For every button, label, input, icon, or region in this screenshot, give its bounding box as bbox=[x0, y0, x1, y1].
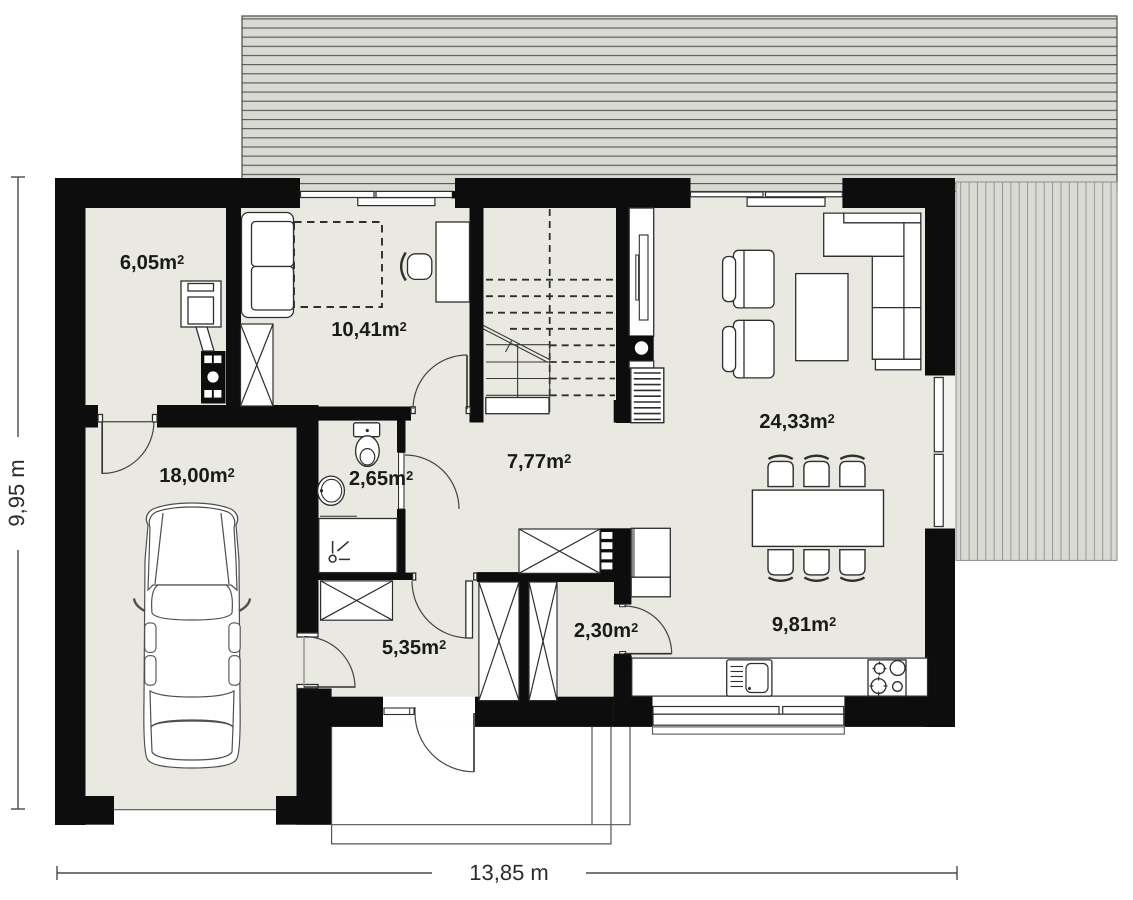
svg-text:2,65m2: 2,65m2 bbox=[349, 468, 413, 490]
svg-text:2,30m2: 2,30m2 bbox=[574, 620, 638, 642]
svg-text:9,95 m: 9,95 m bbox=[4, 459, 29, 526]
svg-text:10,41m2: 10,41m2 bbox=[331, 319, 407, 341]
svg-text:13,85 m: 13,85 m bbox=[469, 860, 549, 885]
svg-text:24,33m2: 24,33m2 bbox=[759, 411, 835, 433]
svg-text:6,05m2: 6,05m2 bbox=[120, 252, 184, 274]
svg-text:7,77m2: 7,77m2 bbox=[507, 451, 571, 473]
svg-text:18,00m2: 18,00m2 bbox=[159, 465, 235, 487]
svg-text:9,81m2: 9,81m2 bbox=[772, 614, 836, 636]
svg-text:5,35m2: 5,35m2 bbox=[382, 637, 446, 659]
